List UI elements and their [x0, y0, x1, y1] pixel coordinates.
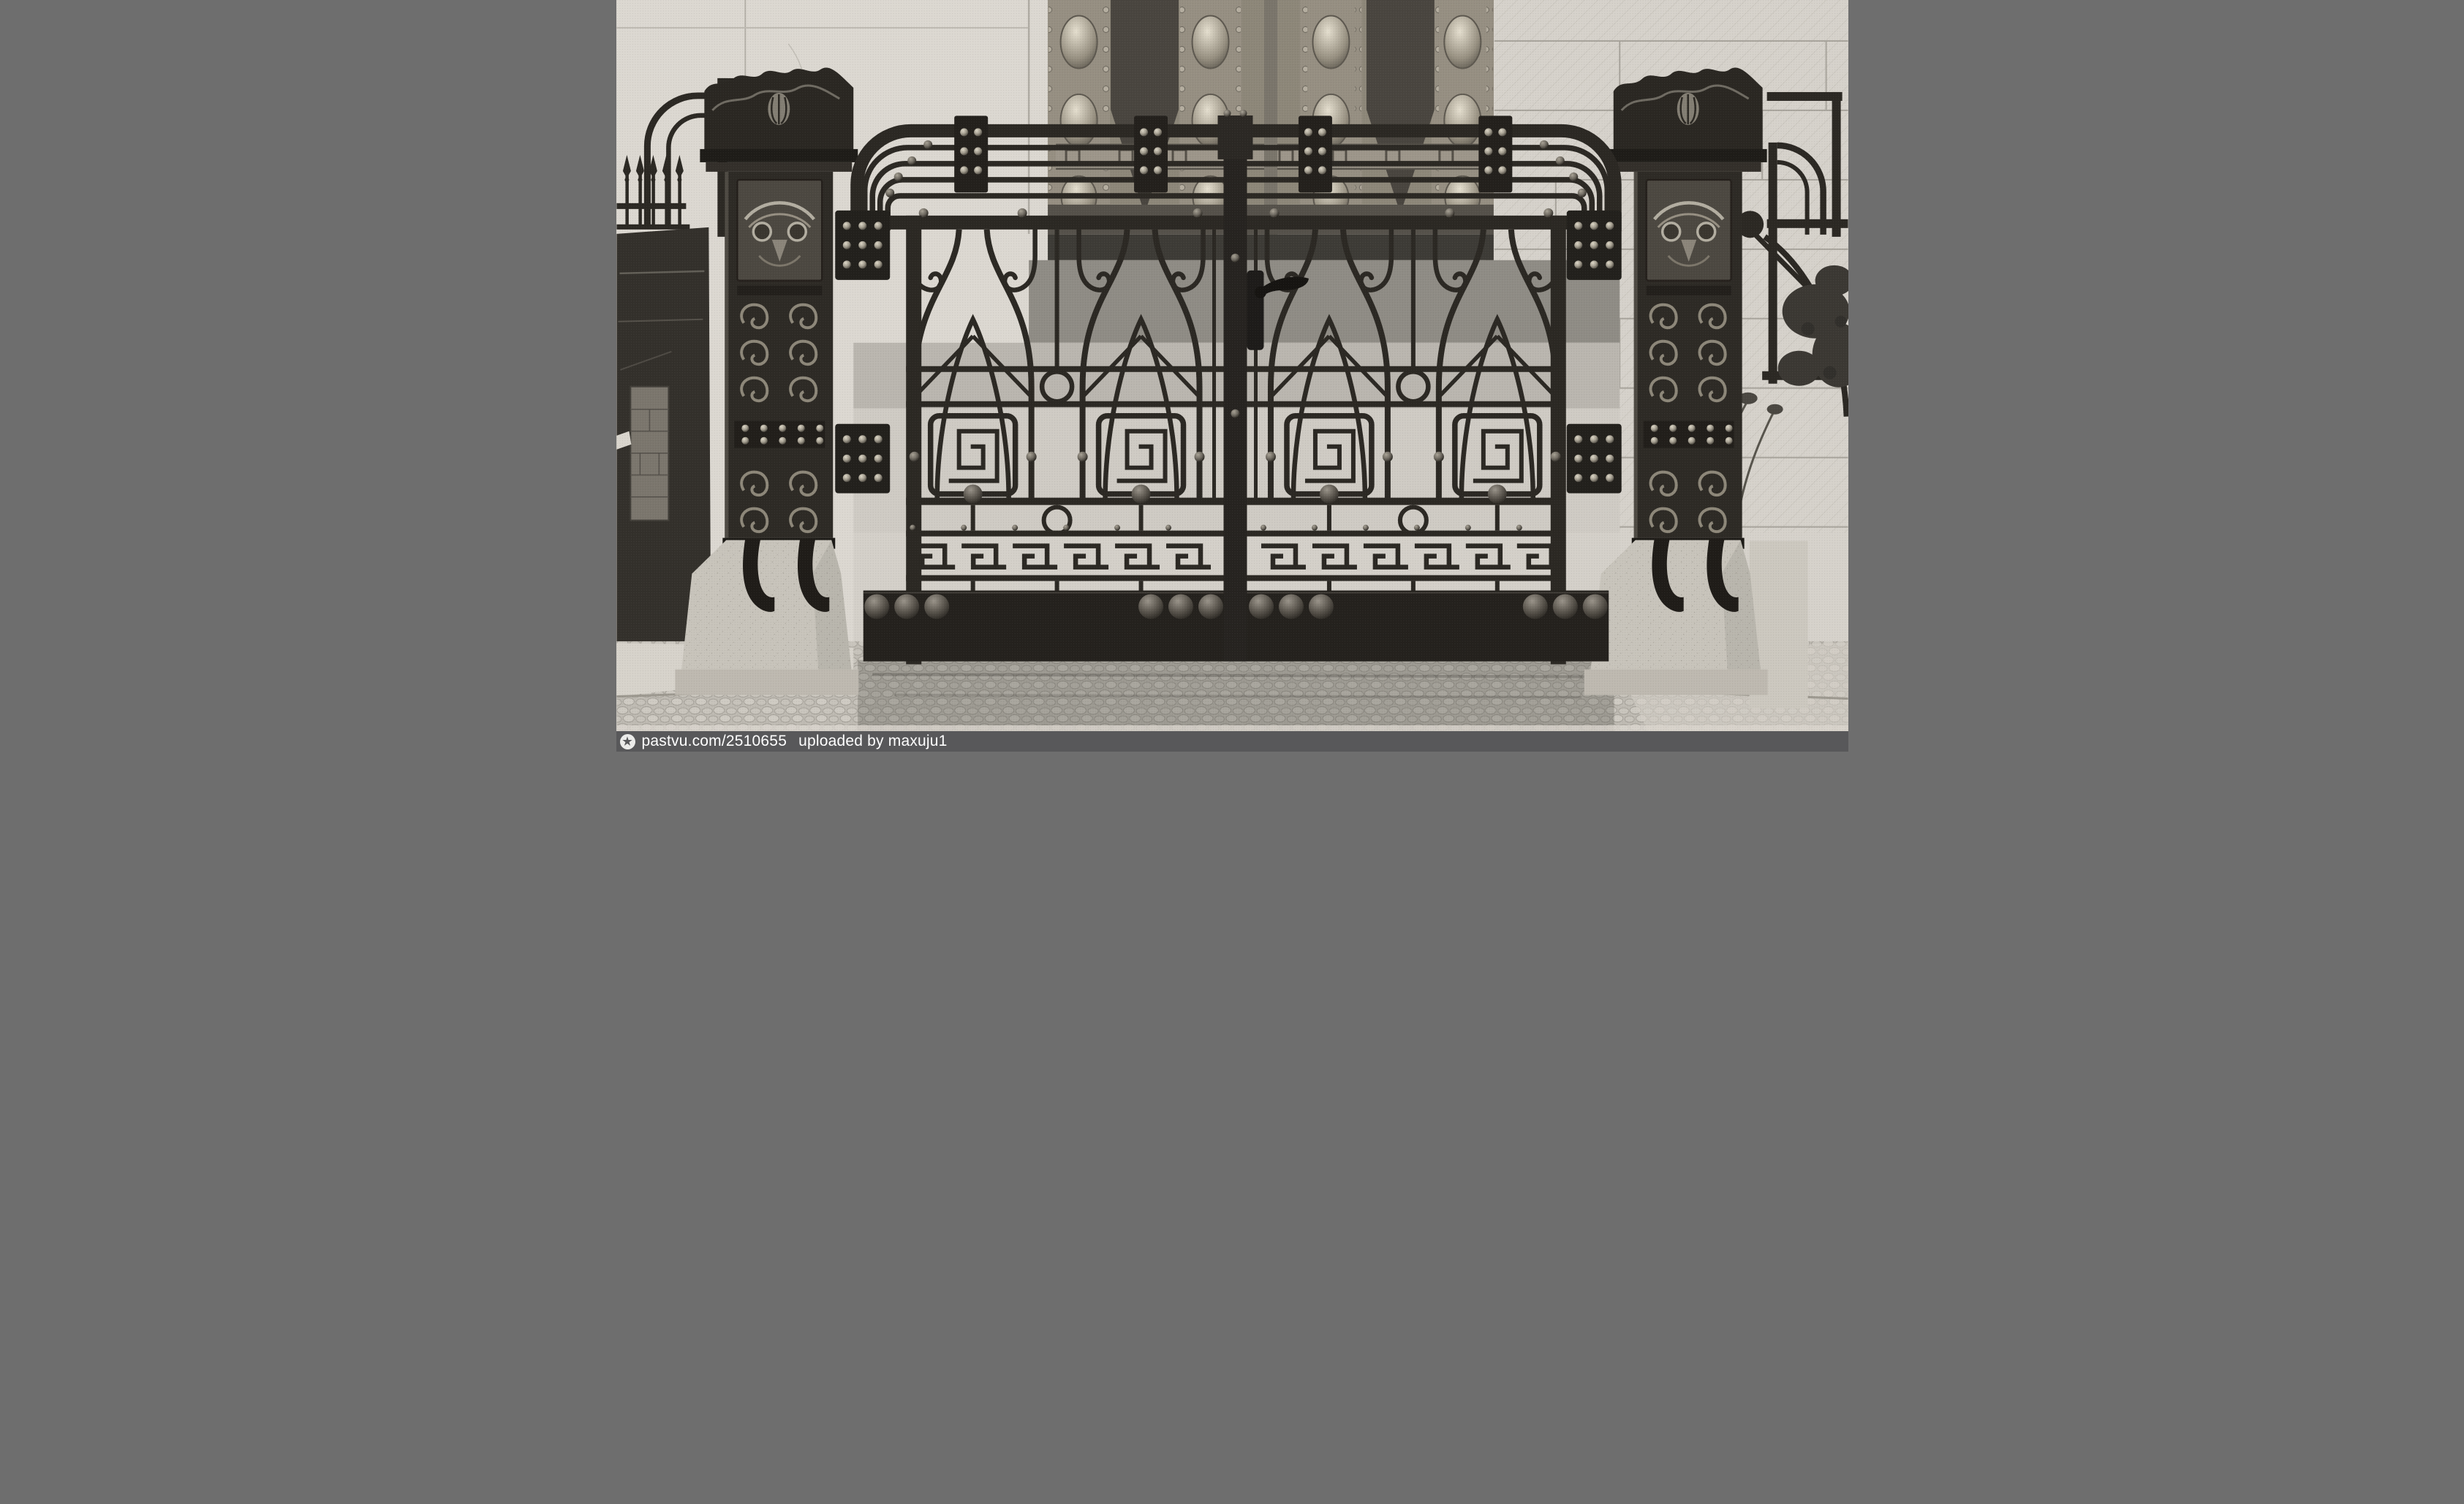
watermark-bar: ★ pastvu.com/2510655 uploaded by maxuju1 — [616, 731, 1848, 752]
historic-photo: ★ pastvu.com/2510655 uploaded by maxuju1… — [616, 0, 1848, 752]
halftone-grain — [616, 0, 1848, 752]
photo-canvas — [616, 0, 1848, 752]
watermark-uploader-text: uploaded by maxuju1 — [798, 733, 947, 750]
pastvu-star-logo-icon: ★ — [620, 734, 635, 749]
watermark-site-text: pastvu.com/2510655 — [642, 733, 787, 750]
